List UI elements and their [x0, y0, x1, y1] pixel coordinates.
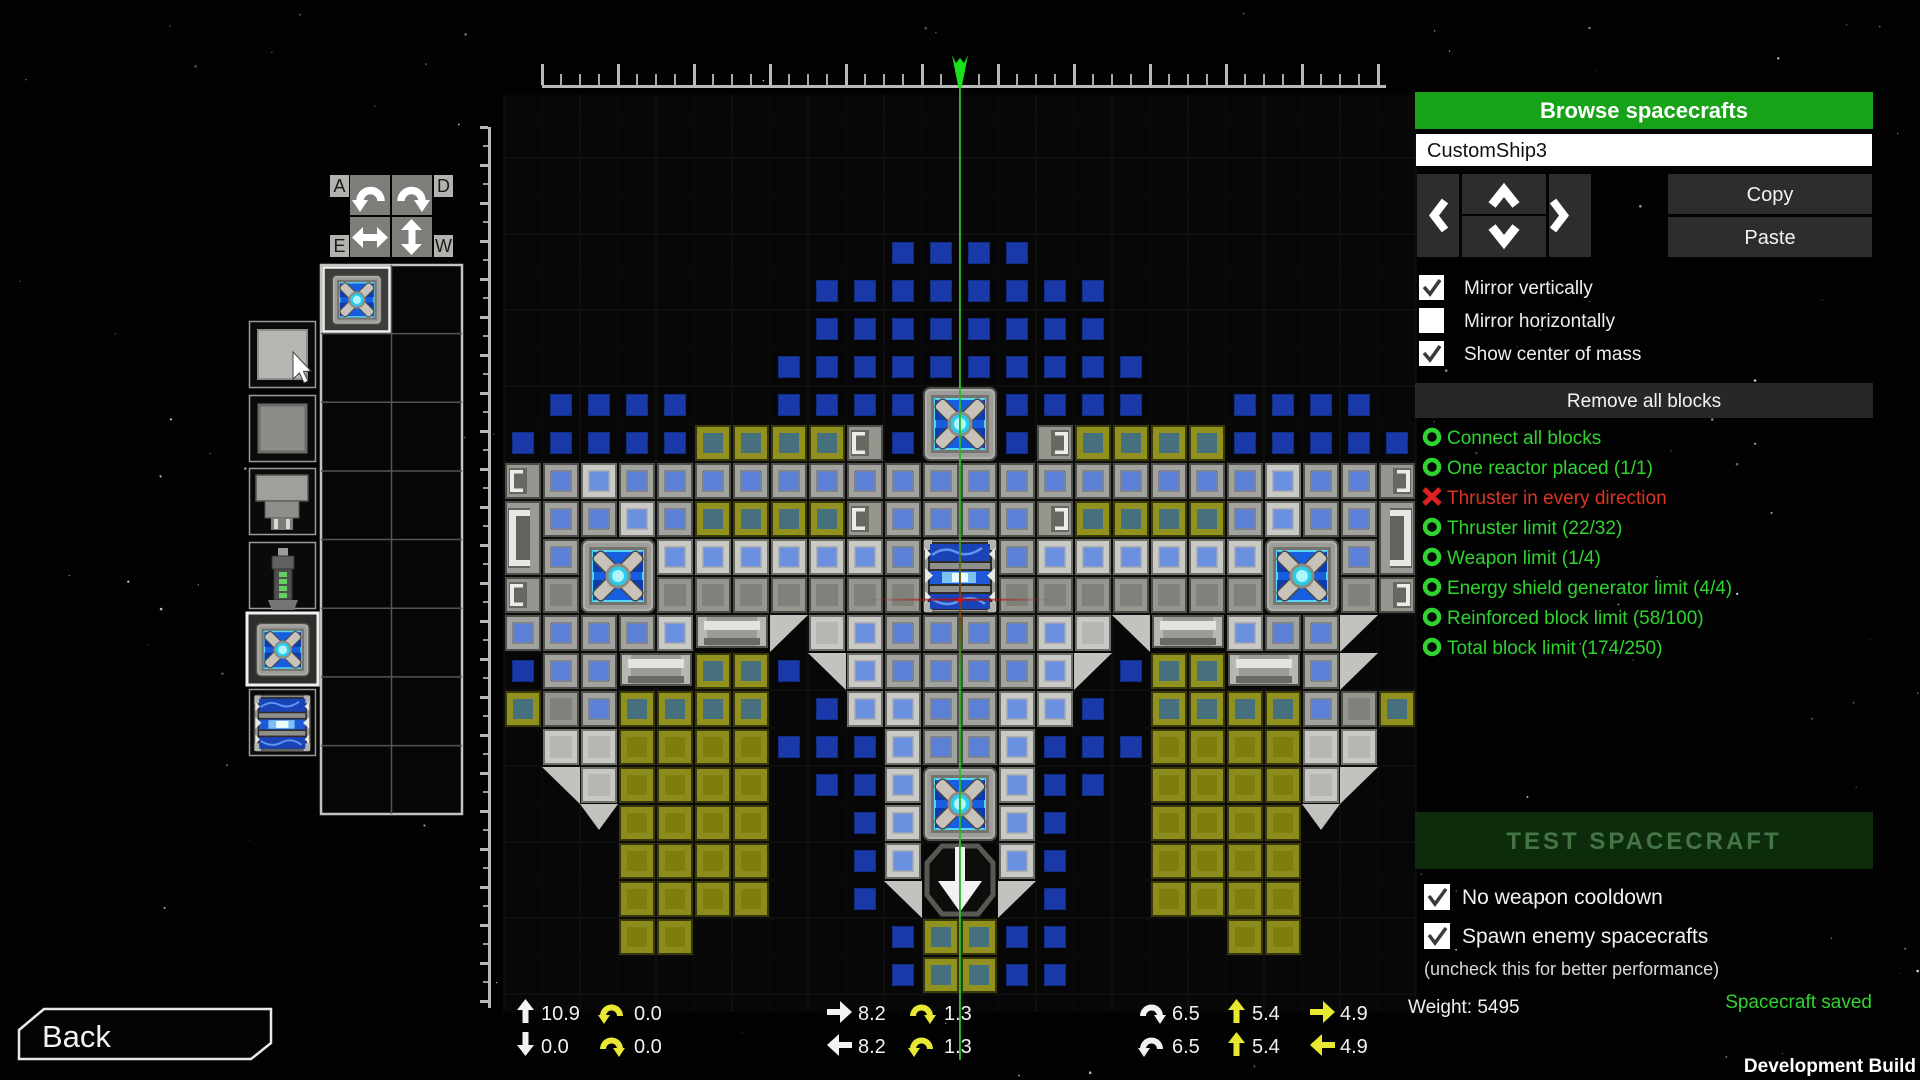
svg-text:One reactor placed (1/1): One reactor placed (1/1) [1447, 458, 1653, 479]
svg-text:TEST SPACECRAFT: TEST SPACECRAFT [1506, 828, 1781, 855]
svg-text:No weapon cooldown: No weapon cooldown [1462, 886, 1663, 909]
svg-text:Copy: Copy [1747, 184, 1794, 206]
svg-text:5.4: 5.4 [1252, 1036, 1280, 1058]
svg-text:Mirror horizontally: Mirror horizontally [1464, 311, 1615, 332]
svg-text:Spacecraft saved: Spacecraft saved [1725, 992, 1872, 1013]
svg-text:0.0: 0.0 [634, 1003, 662, 1025]
svg-text:Connect all blocks: Connect all blocks [1447, 428, 1601, 449]
svg-text:(uncheck this for better perfo: (uncheck this for better performance) [1424, 959, 1719, 979]
svg-text:10.9: 10.9 [541, 1003, 580, 1025]
svg-text:Weapon limit (1/4): Weapon limit (1/4) [1447, 548, 1601, 569]
svg-text:Thruster limit (22/32): Thruster limit (22/32) [1447, 518, 1622, 539]
svg-text:Spawn enemy spacecrafts: Spawn enemy spacecrafts [1462, 925, 1708, 948]
svg-text:0.0: 0.0 [541, 1036, 569, 1058]
svg-text:A: A [333, 176, 345, 196]
svg-text:1.3: 1.3 [944, 1003, 972, 1025]
svg-text:Development Build: Development Build [1744, 1056, 1916, 1077]
svg-text:8.2: 8.2 [858, 1036, 886, 1058]
svg-text:W: W [435, 236, 452, 256]
svg-text:5.4: 5.4 [1252, 1003, 1280, 1025]
svg-text:CustomShip3: CustomShip3 [1427, 140, 1547, 162]
svg-text:E: E [333, 236, 345, 256]
svg-text:6.5: 6.5 [1172, 1003, 1200, 1025]
svg-text:8.2: 8.2 [858, 1003, 886, 1025]
svg-text:4.9: 4.9 [1340, 1003, 1368, 1025]
svg-text:Browse spacecrafts: Browse spacecrafts [1540, 98, 1748, 123]
svg-text:Thruster in every direction: Thruster in every direction [1447, 488, 1667, 509]
svg-text:Weight: 5495: Weight: 5495 [1408, 997, 1520, 1018]
svg-text:Energy shield generator limit: Energy shield generator limit (4/4) [1447, 578, 1732, 599]
svg-text:Show center of mass: Show center of mass [1464, 344, 1641, 365]
svg-text:Paste: Paste [1744, 227, 1795, 249]
svg-text:Remove all blocks: Remove all blocks [1567, 391, 1721, 412]
svg-text:Mirror vertically: Mirror vertically [1464, 278, 1593, 299]
svg-text:6.5: 6.5 [1172, 1036, 1200, 1058]
svg-text:4.9: 4.9 [1340, 1036, 1368, 1058]
svg-text:1.3: 1.3 [944, 1036, 972, 1058]
svg-text:D: D [437, 176, 450, 196]
svg-text:0.0: 0.0 [634, 1036, 662, 1058]
svg-text:Reinforced block limit (58/100: Reinforced block limit (58/100) [1447, 608, 1704, 629]
svg-text:Total block limit (174/250): Total block limit (174/250) [1447, 638, 1662, 659]
svg-text:Back: Back [42, 1019, 111, 1054]
